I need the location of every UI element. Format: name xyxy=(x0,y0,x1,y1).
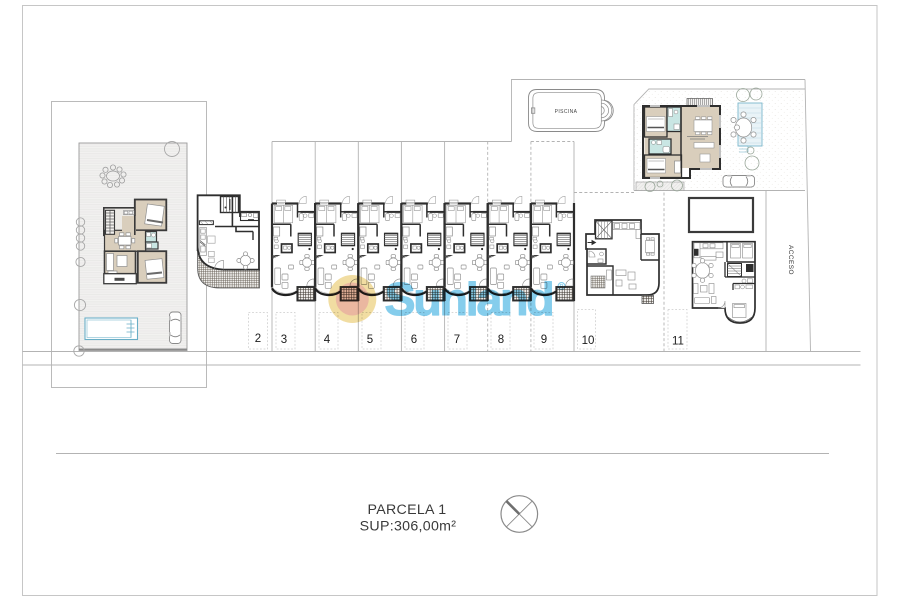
svg-text:11: 11 xyxy=(672,336,684,348)
svg-text:8: 8 xyxy=(498,334,504,346)
svg-text:Sunland: Sunland xyxy=(385,273,553,325)
svg-text:PARCELA 1: PARCELA 1 xyxy=(368,502,447,518)
svg-text:3: 3 xyxy=(281,334,287,346)
svg-text:R: R xyxy=(560,284,564,290)
svg-text:2: 2 xyxy=(255,333,261,345)
svg-text:5: 5 xyxy=(367,334,373,346)
svg-text:SUP:306,00m²: SUP:306,00m² xyxy=(360,519,457,535)
svg-text:7: 7 xyxy=(454,334,460,346)
svg-text:10: 10 xyxy=(582,335,595,347)
svg-text:4: 4 xyxy=(324,334,331,346)
svg-text:ACCESO: ACCESO xyxy=(787,245,794,275)
svg-text:PISCINA: PISCINA xyxy=(555,109,578,115)
svg-text:9: 9 xyxy=(541,334,547,346)
svg-text:6: 6 xyxy=(411,334,417,346)
